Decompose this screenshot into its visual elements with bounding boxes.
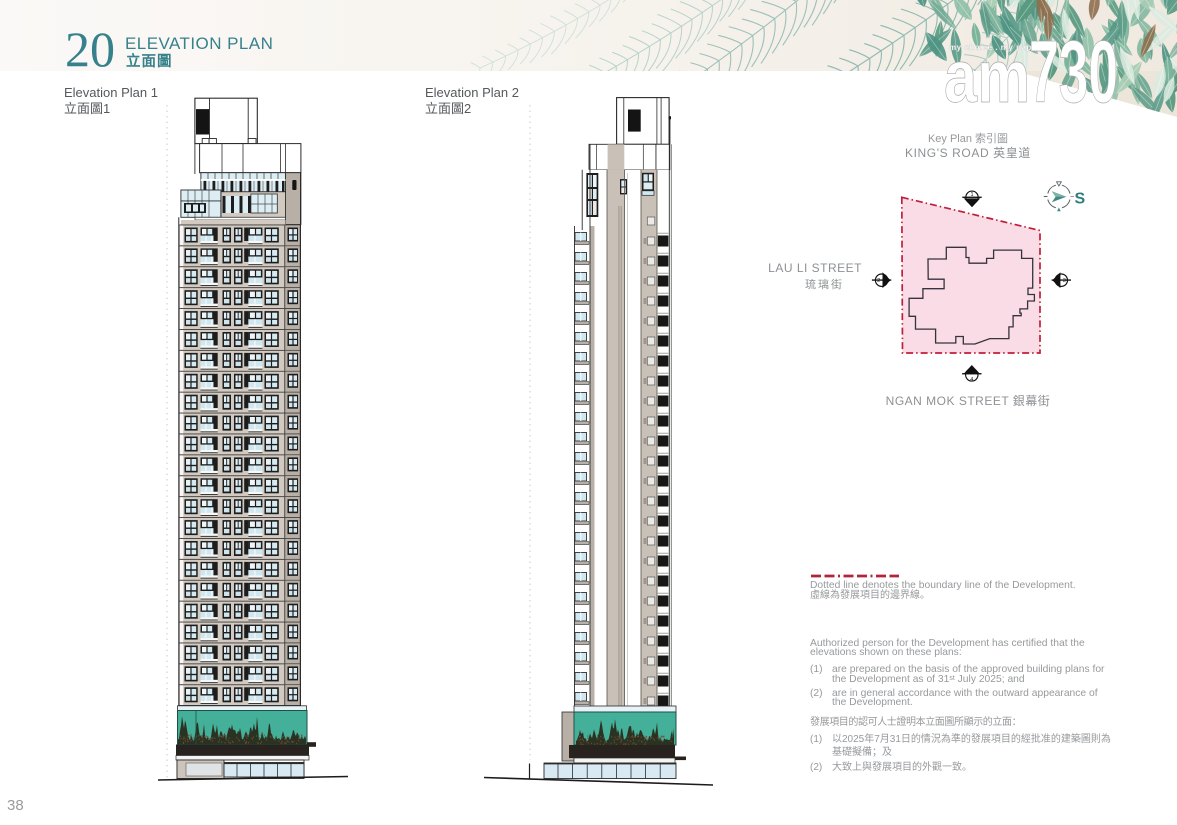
svg-text:1: 1: [970, 192, 973, 198]
svg-text:am: am: [944, 35, 1030, 110]
svg-text:730: 730: [1029, 30, 1118, 110]
svg-text:4: 4: [970, 377, 973, 383]
svg-text:3: 3: [1063, 278, 1066, 284]
svg-text:2: 2: [877, 278, 880, 284]
svg-text:S: S: [1075, 191, 1086, 208]
